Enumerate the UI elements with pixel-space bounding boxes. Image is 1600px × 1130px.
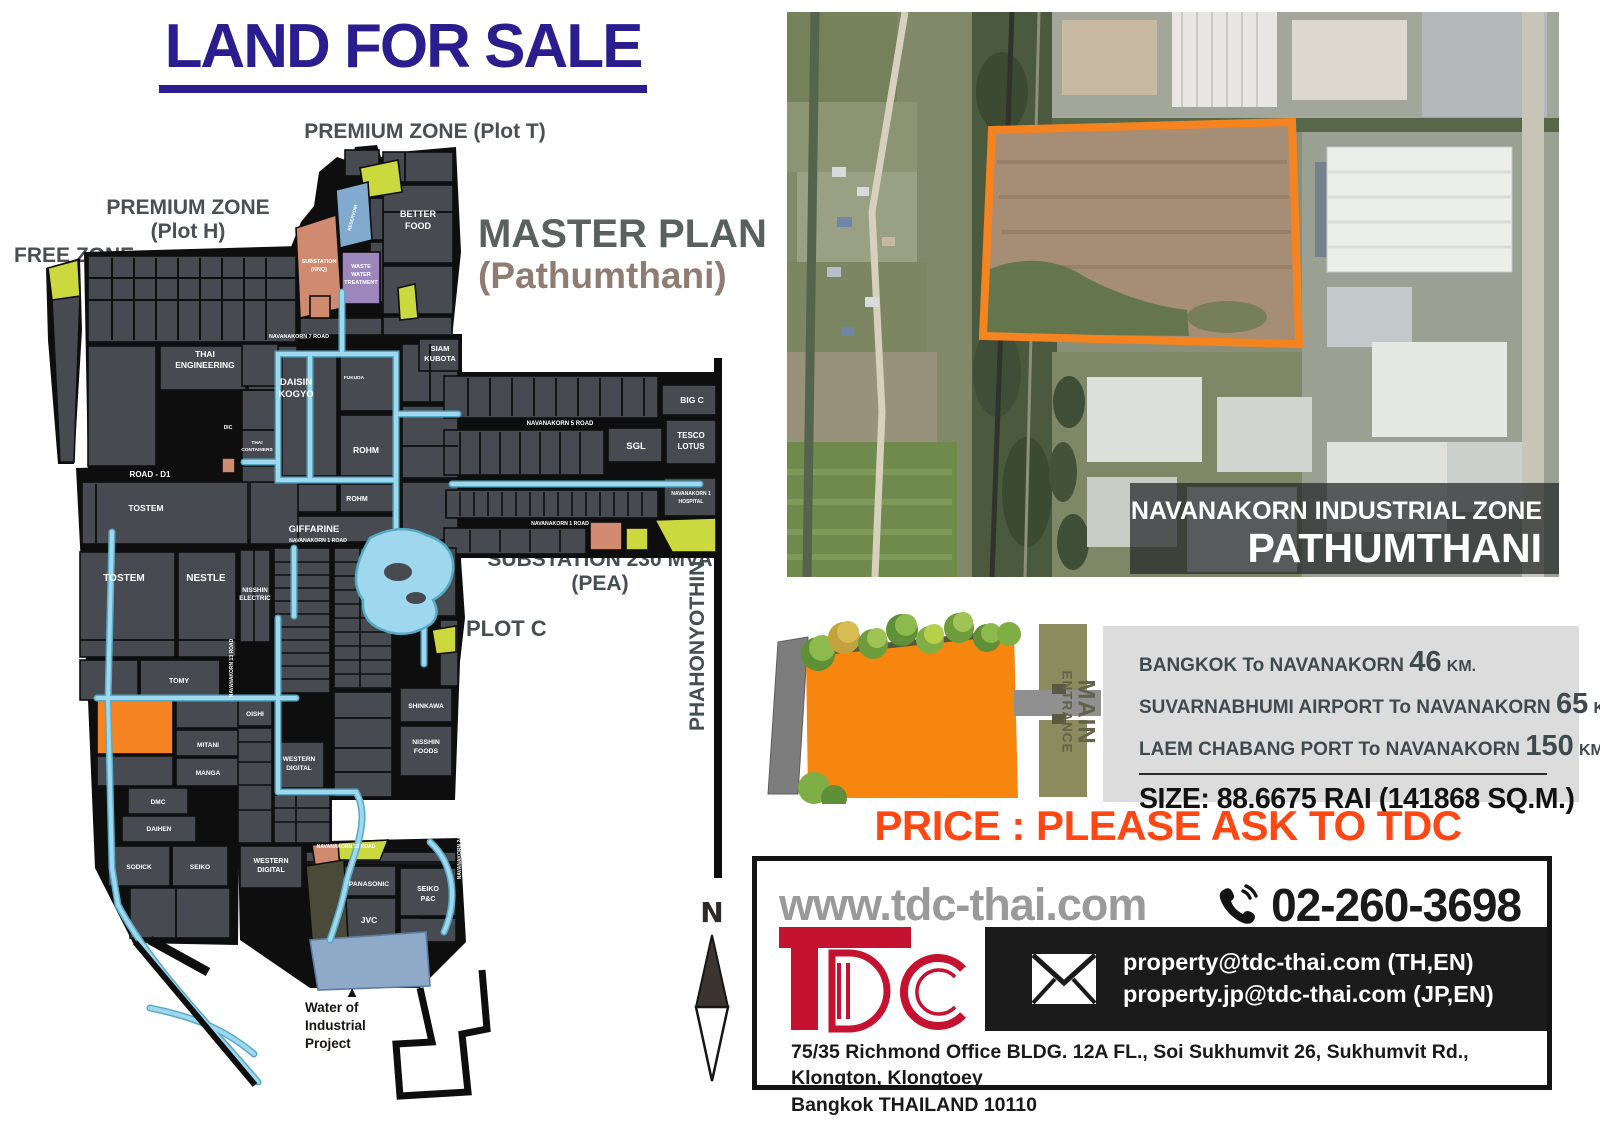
map-label: TOSTEM [128,503,163,513]
map-label: HOSPITAL [679,499,704,505]
map-label: NESTLE [186,573,226,584]
distance-row: BANGKOK To NAVANAKORN 46 KM. [1139,646,1579,679]
map-label: DAISIN [280,377,312,388]
map-label: CONTAINERS [241,447,273,453]
label-main-entrance: MAIN ENTRANCE [1059,670,1098,753]
map-label: WESTERN [254,858,289,865]
map-label: NAVANAKORN 5 ROAD [527,421,594,427]
email-1[interactable]: property@tdc-thai.com (TH,EN) [1123,947,1494,979]
map-label: Water of [305,1000,359,1015]
email-2[interactable]: property.jp@tdc-thai.com (JP,EN) [1123,979,1494,1011]
page-title-wrap: LAND FOR SALE [120,14,686,93]
map-label: SEIKO [190,864,210,871]
email-panel: property@tdc-thai.com (TH,EN) property.j… [985,927,1547,1031]
map-label: DIGITAL [286,765,312,772]
entrance-diagram [756,592,1101,804]
map-label: NAVANAKORN 13 ROAD [317,844,376,850]
map-label: ▲ [345,984,360,1001]
map-label: SODICK [126,864,152,871]
map-label: NISSHIN [412,739,440,746]
map-label: P&C [421,896,436,903]
map-label: FOOD [405,221,431,231]
map-label: LOTUS [677,442,705,451]
map-label: WATER [351,272,370,278]
map-label: MANGA [196,770,221,777]
map-label: BIG C [680,395,704,405]
map-label: ROHM [353,445,379,455]
map-label: WESTERN [283,756,316,763]
map-label: TREATMENT [344,280,378,286]
phone-number[interactable]: 02-260-3698 [1271,878,1521,932]
map-label: TOMY [169,678,189,685]
map-label: THAI [251,440,263,446]
phone-icon [1215,883,1259,927]
company-address: 75/35 Richmond Office BLDG. 12A FL., Soi… [791,1039,1547,1118]
map-label: DIC [224,425,233,431]
distance-row: SUVARNABHUMI AIRPORT To NAVANAKORN 65 KM… [1139,688,1579,721]
map-label: JVC [361,915,378,925]
map-label: NAVANAKORN 1 ROAD [531,521,589,527]
map-label: NAVANAKORN 24 ROAD [457,820,463,879]
map-label: ROAD - D1 [130,470,171,479]
map-label: SGL [626,441,646,452]
map-label: NISSHIN [242,587,268,594]
master-plan-map: BETTERFOODSUBSTATION(NNQ)RESERVOIRWASTEW… [35,140,730,1110]
map-label: PANASONIC [349,881,389,888]
map-label: TOSTEM [103,573,144,584]
info-divider [1139,773,1547,775]
distance-info-panel: BANGKOK To NAVANAKORN 46 KM. SUVARNABHUM… [1103,626,1579,802]
map-label: NAVANAKORN 1 ROAD [289,538,347,544]
map-label: BETTER [400,209,437,219]
map-label: DAIHEN [147,826,172,833]
phone-group[interactable]: 02-260-3698 [1215,878,1521,932]
map-label: KUBOTA [424,354,456,363]
map-label: DMC [151,799,166,806]
map-label: SUBSTATION [302,259,337,265]
map-label: ROHM [346,496,368,503]
map-label: SEIKO [417,886,439,893]
map-label: SHINKAWA [408,703,444,710]
flyer: LAND FOR SALE PREMIUM ZONE (Plot T) PREM… [0,0,1600,1130]
map-label: Project [305,1036,351,1051]
map-label: NAVANAKORN 1 [671,491,711,497]
map-label: ELECTRIC [239,595,271,602]
email-addresses: property@tdc-thai.com (TH,EN) property.j… [1123,947,1494,1010]
map-label: (NNQ) [311,267,327,273]
map-label: SIAM [431,344,450,353]
mail-icon [1031,953,1097,1005]
map-label: KOGYO [278,389,313,400]
price-line: PRICE : PLEASE ASK TO TDC [756,802,1580,850]
map-label: FUKUDA [344,375,365,381]
map-label: NAVANAKORN 13 ROAD [229,638,235,697]
map-label: TESCO [677,431,705,440]
map-label: FOODS [414,748,439,755]
tdc-logo [777,925,972,1033]
map-label: OISHI [246,711,264,718]
map-label: WASTE [351,264,371,270]
map-label: NAVANAKORN 7 ROAD [269,334,329,340]
map-label: Industrial [305,1018,366,1033]
map-label: THAI [195,349,215,359]
distance-row: LAEM CHABANG PORT To NAVANAKORN 150 KM. [1139,730,1579,763]
map-label: DIGITAL [257,867,285,874]
website-link[interactable]: www.tdc-thai.com [779,879,1146,931]
map-label: GIFFARINE [289,524,340,535]
entrance-land-plot [806,632,1018,798]
contact-box: www.tdc-thai.com 02-260-3698 [752,856,1552,1090]
map-label: ENGINEERING [175,360,235,370]
page-title: LAND FOR SALE [159,14,648,93]
map-label: MITANI [197,742,219,749]
satellite-image: NAVANAKORN INDUSTRIAL ZONE PATHUMTHANI [787,12,1559,577]
